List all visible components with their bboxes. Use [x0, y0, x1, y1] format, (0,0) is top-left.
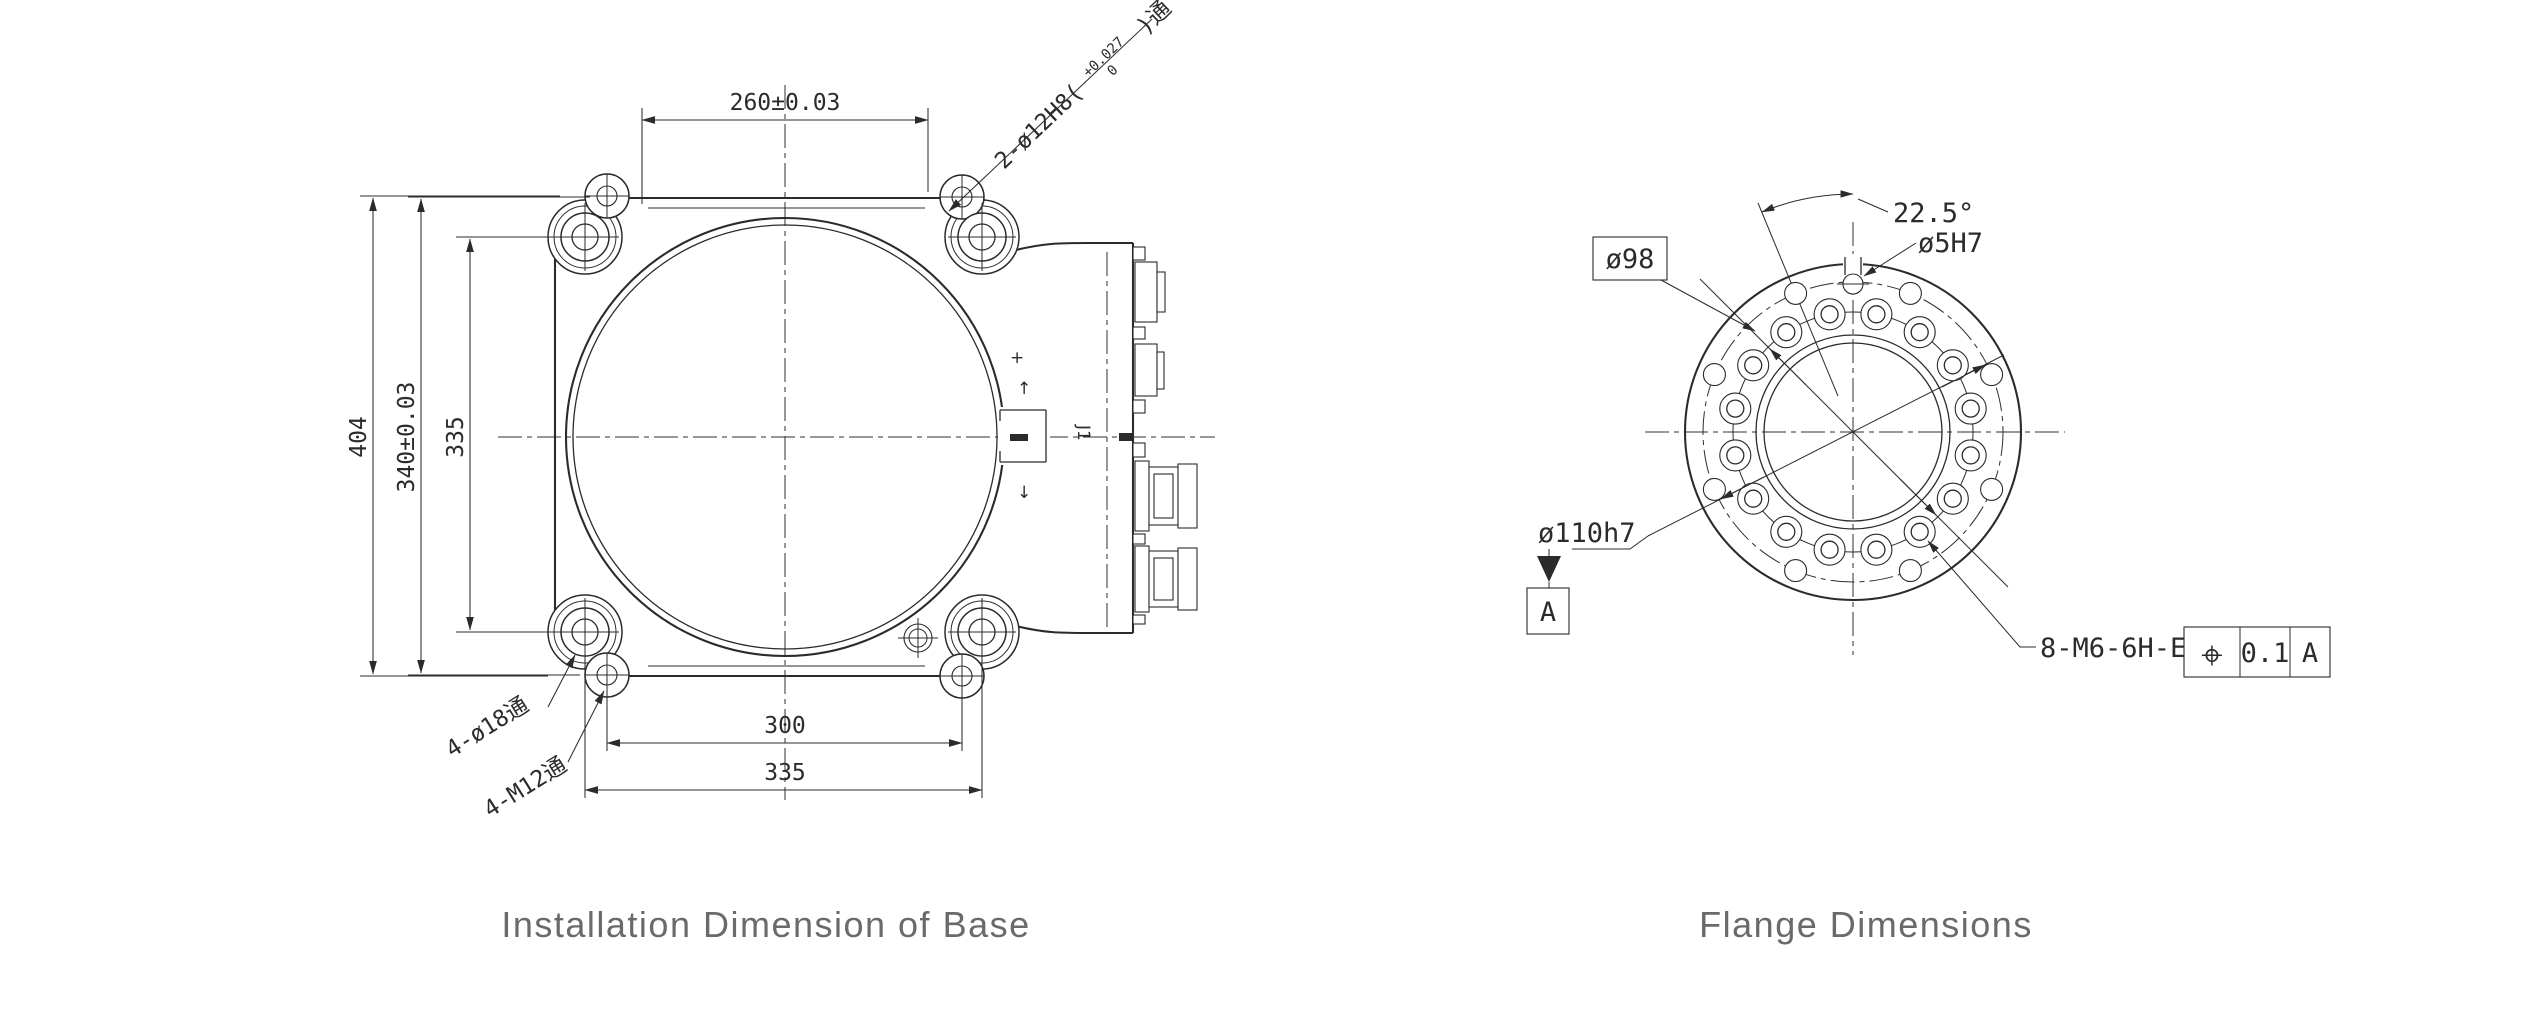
- feature-control-frame: ⌖ 0.1 A: [2184, 627, 2330, 677]
- port-label: J1: [1073, 424, 1093, 441]
- mounting-holes: [551, 174, 1016, 698]
- dim-overall-height: 404: [346, 416, 372, 458]
- m6-hole: [1904, 317, 1935, 348]
- angle-dimension: 22.5°: [1762, 194, 1974, 229]
- base-view-title: Installation Dimension of Base: [501, 904, 1030, 945]
- m6-hole: [1771, 516, 1802, 547]
- m6-hole: [1955, 393, 1986, 424]
- dim-pin-hole: ø5H7: [1918, 228, 1983, 259]
- pin-callout-tol-upper: +0.027: [1080, 34, 1128, 80]
- connector-tab: [1133, 443, 1145, 457]
- connector-tab: [1133, 400, 1145, 413]
- dim-bolt-circle: ø98: [1606, 244, 1655, 275]
- connector-tab: [1133, 247, 1145, 260]
- ringed-pin-hole: [898, 618, 938, 658]
- connector-block: [1135, 344, 1164, 396]
- arrow-down-icon: ↓: [1017, 483, 1031, 503]
- dim-bolt-span-outer: 335: [764, 760, 806, 786]
- datum-letter: A: [1540, 597, 1556, 628]
- pin-hole-callout-flange: ø5H7: [1864, 228, 1983, 276]
- connector-panel: [1119, 247, 1197, 624]
- dim-bolt-span-vertical: 335: [443, 416, 469, 458]
- connector-tab: [1133, 327, 1145, 339]
- plus-marker: +: [1010, 348, 1024, 368]
- dim-pin-span-vertical: 340±0.03: [394, 382, 420, 493]
- dim-spigot: ø110h7: [1538, 518, 1636, 549]
- locating-pin-hole: [1837, 274, 1869, 294]
- dim-index-angle: 22.5°: [1893, 198, 1974, 229]
- m6-hole: [1861, 299, 1892, 330]
- through-hole-callout: 4-ø18通: [441, 692, 533, 763]
- dim-bolt-span-inner: 300: [764, 713, 806, 739]
- position-tolerance-datum: A: [2302, 638, 2318, 669]
- position-tolerance-icon: ⌖: [2201, 633, 2222, 677]
- pin-callout-suffix: )通: [1132, 0, 1177, 40]
- datum-flag: A: [1527, 549, 1569, 634]
- connector-tab: [1133, 615, 1145, 624]
- dim-pin-span-top: 260±0.03: [730, 90, 841, 116]
- outer-ring-hole: [1981, 364, 2003, 386]
- spigot-callout: ø110h7 A: [1527, 518, 1648, 634]
- m6-hole: [1814, 534, 1845, 565]
- pin-hole-callout: 2-ø12H8( +0.027 0 )通: [984, 0, 1181, 179]
- m6-hole: [1955, 440, 1986, 471]
- base-leaders: 2-ø12H8( +0.027 0 )通 4-ø18通 4-M12通: [441, 0, 1181, 823]
- technical-drawing-page: + ↑ J1 ↓ 260±0.03 404 340±0.03 335: [0, 0, 2548, 1030]
- outer-ring-hole: [1785, 282, 1807, 304]
- notch-tick: [1010, 434, 1028, 441]
- keyway-notch: [1843, 254, 1863, 276]
- panel-tick: [1119, 433, 1133, 441]
- m6-hole: [1861, 534, 1892, 565]
- flange-view: 22.5° ø98 ø5H7 ø110h7 A: [1527, 194, 2330, 945]
- arrow-up-icon: ↑: [1017, 379, 1031, 399]
- m6-hole: [1720, 393, 1751, 424]
- thread-callout: 8-M6-6H-EQS ⌖ 0.1 A: [1928, 541, 2330, 677]
- outer-ring-hole: [1703, 364, 1725, 386]
- connector-block: [1135, 461, 1197, 531]
- position-tolerance-value: 0.1: [2241, 638, 2290, 669]
- m6-hole: [1904, 516, 1935, 547]
- connector-block: [1135, 262, 1165, 322]
- m6-hole: [1738, 350, 1769, 381]
- pin-callout-tol-lower: 0: [1104, 62, 1121, 79]
- outer-ring-hole: [1981, 478, 2003, 500]
- base-dimensions: 260±0.03 404 340±0.03 335 300: [346, 90, 982, 798]
- flange-view-title: Flange Dimensions: [1699, 904, 2033, 945]
- technical-drawing: + ↑ J1 ↓ 260±0.03 404 340±0.03 335: [0, 0, 2548, 1030]
- pin-callout-prefix: 2-ø12H8(: [990, 79, 1088, 174]
- outer-ring-hole: [1785, 560, 1807, 582]
- connector-block: [1135, 546, 1197, 612]
- threaded-hole-callout: 4-M12通: [479, 752, 571, 823]
- m6-hole: [1720, 440, 1751, 471]
- m6-hole: [1937, 483, 1968, 514]
- base-view: + ↑ J1 ↓ 260±0.03 404 340±0.03 335: [346, 0, 1215, 945]
- outer-ring-hole: [1899, 282, 1921, 304]
- m6-hole: [1814, 299, 1845, 330]
- connector-tab: [1133, 534, 1145, 544]
- outer-ring-hole: [1703, 478, 1725, 500]
- mounting-ears: [548, 174, 1019, 698]
- m6-hole: [1771, 317, 1802, 348]
- outer-ring-hole: [1899, 560, 1921, 582]
- diameter-line-98: [1700, 279, 2008, 587]
